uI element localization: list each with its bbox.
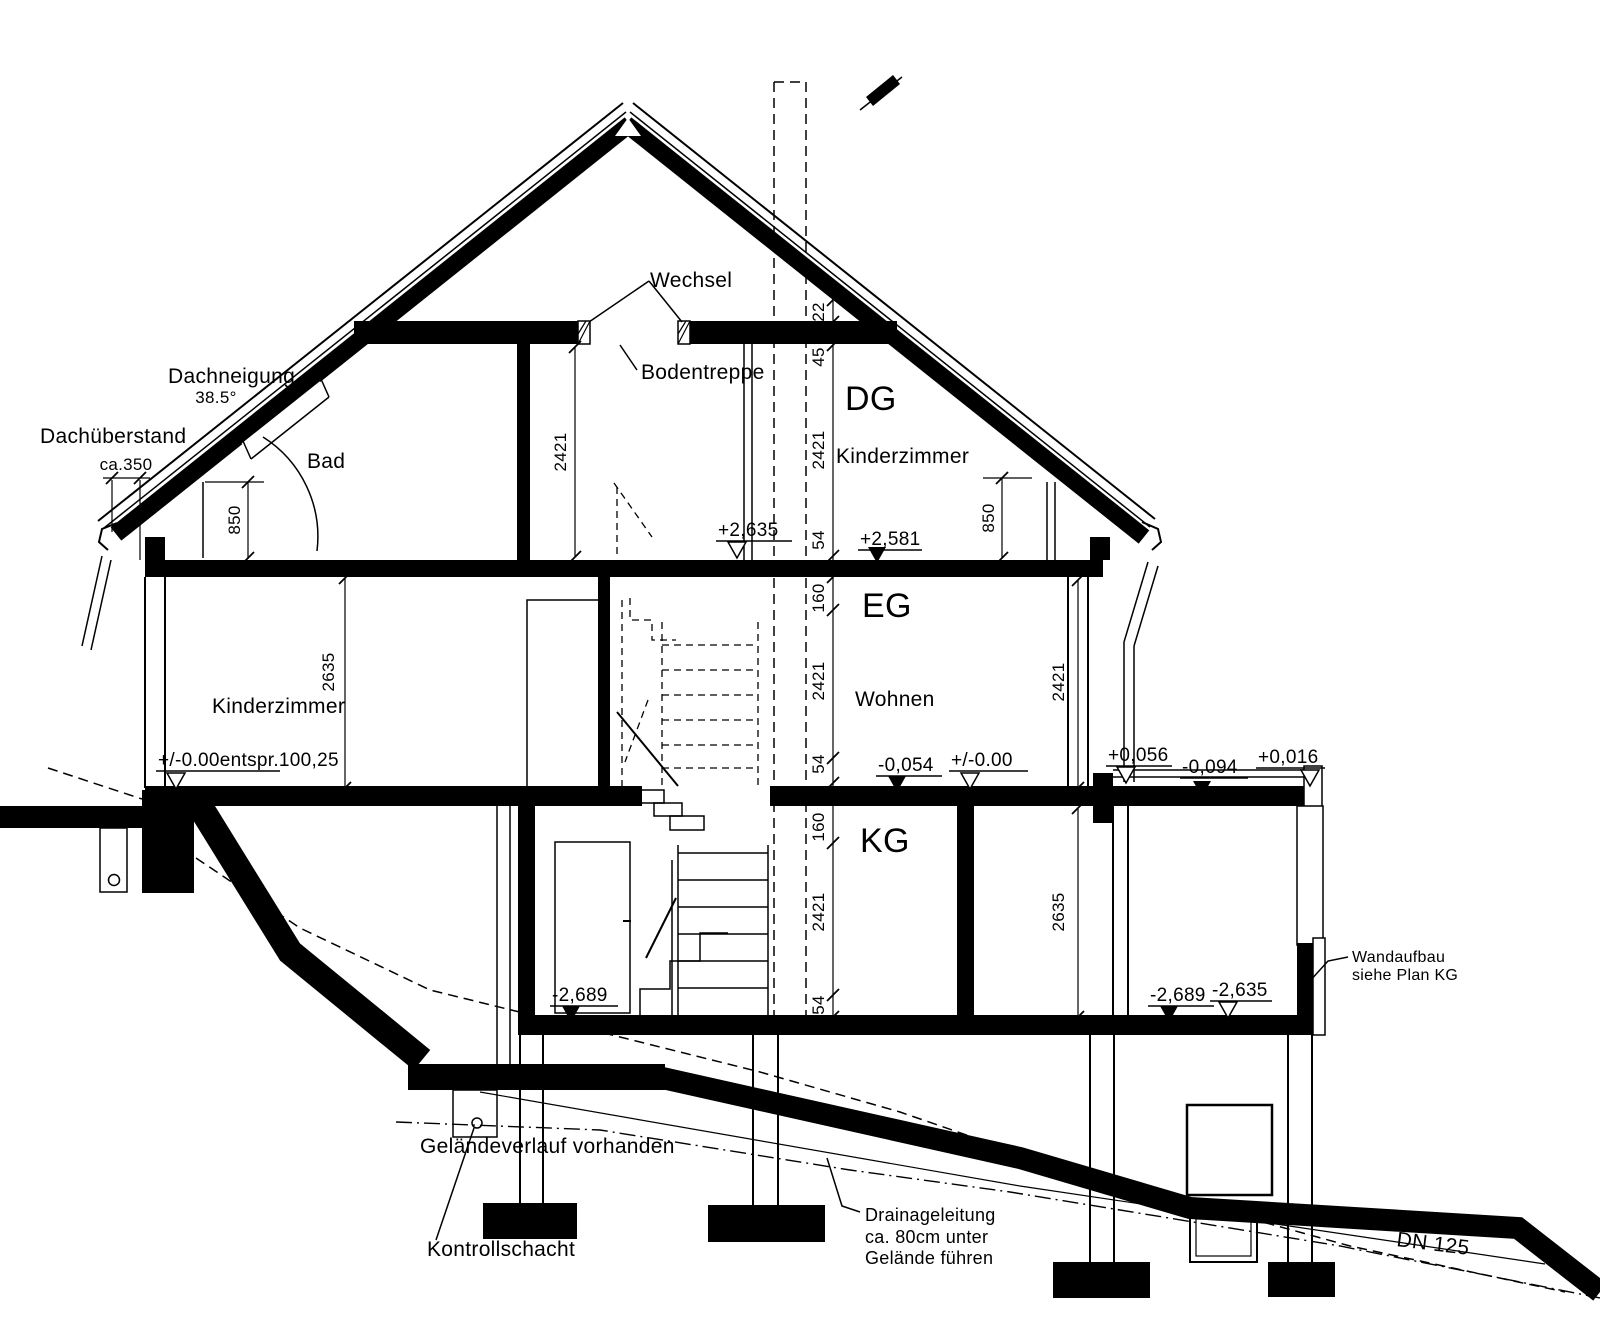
dim-kg-2635-right: 2635 (1049, 802, 1084, 1023)
label-dachueberstand-value: ca.350 (100, 455, 153, 474)
note-wandaufbau: Wandaufbau siehe Plan KG (1309, 949, 1458, 984)
svg-text:2421: 2421 (551, 432, 570, 471)
dim-eg-2421-right: 2421 (1049, 574, 1084, 794)
svg-text:+/-0.00entspr.100,25: +/-0.00entspr.100,25 (158, 750, 339, 771)
dim-850-right: 850 (979, 472, 1032, 564)
svg-text:-2,689: -2,689 (1150, 985, 1206, 1006)
wechsel-trimmer-right (678, 321, 690, 344)
dim-chain: 22 45 2421 54 160 2421 54 160 2421 54 (809, 294, 839, 1023)
kg-stair (638, 790, 768, 1015)
label-dachueberstand: Dachüberstand (40, 425, 186, 448)
svg-text:Wandaufbau: Wandaufbau (1352, 949, 1445, 966)
label-dg: DG (845, 380, 897, 418)
eg-door (527, 600, 602, 788)
eg-floor-slab (145, 766, 1322, 823)
label-dachneigung-value: 38.5° (195, 388, 236, 407)
level-marker-kg-right-finished: -2,635 (1210, 980, 1272, 1018)
roof (98, 75, 1155, 537)
svg-text:2635: 2635 (1049, 892, 1068, 931)
label-bad: Bad (307, 450, 345, 473)
level-marker-eg-finished: +/-0.00 (949, 750, 1028, 789)
dim-chain-8: 2421 (809, 892, 828, 931)
label-gelaendeverlauf: Geländeverlauf vorhanden (420, 1135, 675, 1158)
dim-chain-9: 54 (809, 995, 828, 1015)
left-drain-pipe (109, 875, 120, 886)
eg-stair-dashed (622, 598, 758, 786)
gutter-left (82, 523, 117, 650)
level-marker-eg-zero: +/-0.00entspr.100,25 (156, 750, 339, 789)
note-drainage: Drainageleitung ca. 80cm unter Gelände f… (827, 1158, 996, 1268)
level-marker-dg-raw: +2,581 (858, 529, 922, 563)
level-marker-dg-finished: +2,635 (716, 520, 792, 558)
dim-chain-5: 2421 (809, 661, 828, 700)
label-eg-room-left: Kinderzimmer (212, 695, 345, 718)
dim-chain-3: 54 (809, 530, 828, 550)
dim-chain-1: 45 (809, 347, 828, 367)
svg-text:ca. 80cm unter: ca. 80cm unter (865, 1227, 988, 1247)
dim-chain-7: 160 (809, 812, 828, 841)
chimney (774, 82, 806, 1015)
label-eg: EG (862, 587, 912, 625)
svg-text:850: 850 (979, 503, 998, 532)
svg-text:-2,635: -2,635 (1212, 980, 1268, 1001)
dim-850-left: 850 (205, 476, 264, 564)
wechsel-trimmer-left (578, 321, 590, 344)
kg-floor-slab (518, 1015, 1313, 1035)
label-dg-room: Kinderzimmer (836, 445, 969, 468)
svg-text:+2,581: +2,581 (860, 529, 920, 550)
svg-text:-0,094: -0,094 (1182, 757, 1238, 778)
label-kg: KG (860, 822, 910, 860)
dim-chain-4: 160 (809, 583, 828, 612)
svg-text:+/-0.00: +/-0.00 (951, 750, 1013, 771)
svg-text:Kontrollschacht: Kontrollschacht (427, 1238, 575, 1261)
svg-text:Drainageleitung: Drainageleitung (865, 1205, 996, 1225)
kontrollschacht-box (453, 1090, 497, 1137)
dim-dg-2421: 2421 (551, 341, 581, 563)
dg-floor-slab (145, 537, 1110, 577)
label-wechsel: Wechsel (650, 269, 732, 292)
label-eg-room: Wohnen (855, 688, 935, 711)
label-bodentreppe: Bodentreppe (641, 361, 765, 384)
dim-chain-2: 2421 (809, 430, 828, 469)
svg-text:Gelände führen: Gelände führen (865, 1248, 993, 1268)
svg-text:2635: 2635 (319, 652, 338, 691)
building-section-sheet: 22 45 2421 54 160 2421 54 160 2421 54 24… (0, 0, 1600, 1320)
dim-chain-6: 54 (809, 754, 828, 774)
svg-text:850: 850 (225, 505, 244, 534)
svg-text:siehe Plan KG: siehe Plan KG (1352, 967, 1458, 984)
kontrollschacht-symbol (472, 1118, 482, 1128)
light-well (1187, 1105, 1272, 1262)
svg-text:2421: 2421 (1049, 662, 1068, 701)
svg-text:-0,054: -0,054 (878, 755, 934, 776)
svg-text:+0,056: +0,056 (1108, 745, 1168, 766)
svg-text:+0,016: +0,016 (1258, 747, 1318, 768)
section-drawing: 22 45 2421 54 160 2421 54 160 2421 54 24… (0, 0, 1600, 1320)
dim-chain-0: 22 (809, 302, 828, 322)
svg-text:+2,635: +2,635 (718, 520, 778, 541)
gutter-right (1124, 522, 1161, 782)
label-dachneigung: Dachneigung (168, 365, 295, 388)
svg-text:-2,689: -2,689 (552, 985, 608, 1006)
